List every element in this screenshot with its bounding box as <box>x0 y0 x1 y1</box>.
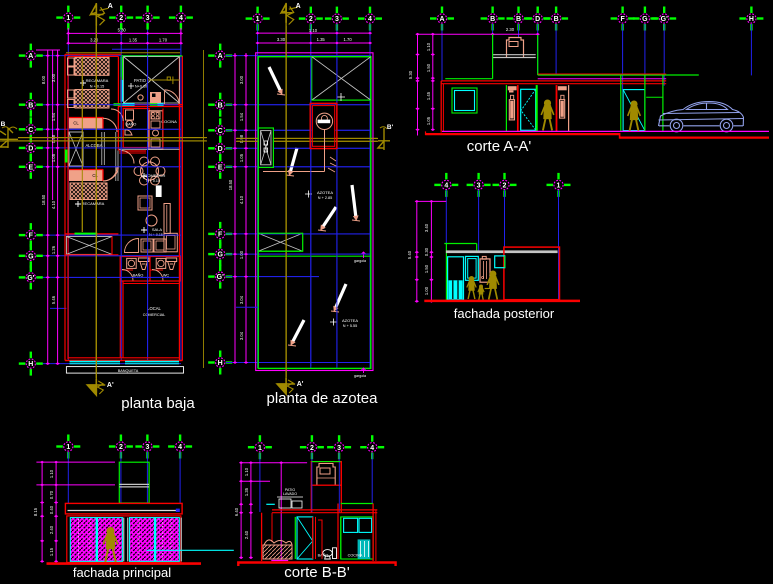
svg-text:E: E <box>218 164 223 171</box>
svg-text:BAÑO: BAÑO <box>318 553 329 558</box>
svg-text:1.05: 1.05 <box>426 116 431 125</box>
svg-text:3.30: 3.30 <box>277 37 286 42</box>
svg-text:5.46: 5.46 <box>51 295 56 304</box>
svg-text:3.40: 3.40 <box>424 223 429 232</box>
svg-text:LAVADO: LAVADO <box>283 492 297 496</box>
svg-text:A': A' <box>107 382 114 389</box>
svg-text:4: 4 <box>368 16 372 23</box>
svg-text:gargola: gargola <box>354 259 366 263</box>
svg-text:A: A <box>108 3 113 10</box>
svg-text:WC: WC <box>163 274 170 278</box>
svg-text:gargola: gargola <box>354 374 366 378</box>
svg-text:H: H <box>28 361 33 368</box>
svg-text:1.35: 1.35 <box>129 38 138 43</box>
svg-text:A: A <box>218 53 223 60</box>
svg-text:BAÑO: BAÑO <box>126 122 137 127</box>
svg-text:1.54: 1.54 <box>239 112 244 121</box>
svg-text:BAÑO: BAÑO <box>133 273 144 278</box>
svg-text:COCINA: COCINA <box>161 119 177 124</box>
svg-text:18.50: 18.50 <box>228 179 233 190</box>
svg-text:B: B <box>516 16 521 23</box>
svg-text:0.98: 0.98 <box>51 134 56 143</box>
svg-text:B: B <box>218 102 223 109</box>
svg-text:COCINA: COCINA <box>348 554 363 558</box>
svg-text:4.10: 4.10 <box>51 200 56 209</box>
svg-text:F: F <box>620 16 625 23</box>
svg-text:1.54: 1.54 <box>51 112 56 121</box>
svg-text:A: A <box>296 3 301 10</box>
svg-text:1: 1 <box>258 445 262 452</box>
svg-text:D: D <box>535 16 540 23</box>
svg-text:corte B-B': corte B-B' <box>284 564 350 581</box>
svg-text:4: 4 <box>444 183 448 190</box>
svg-text:B: B <box>490 16 495 23</box>
svg-text:A: A <box>439 16 444 23</box>
svg-text:LOCAL: LOCAL <box>147 306 161 311</box>
svg-text:D: D <box>218 146 223 153</box>
svg-text:2: 2 <box>309 16 313 23</box>
svg-text:3.00: 3.00 <box>239 75 244 84</box>
svg-text:1.35: 1.35 <box>244 487 249 496</box>
svg-text:4: 4 <box>178 444 182 451</box>
svg-text:G': G' <box>27 275 34 282</box>
svg-text:2: 2 <box>310 445 314 452</box>
svg-text:1.10: 1.10 <box>49 469 54 478</box>
svg-text:3.04: 3.04 <box>239 295 244 304</box>
svg-text:0.40: 0.40 <box>49 505 54 514</box>
svg-text:B: B <box>1 121 6 128</box>
svg-text:corte A-A': corte A-A' <box>467 138 532 155</box>
svg-text:N + 0.15: N + 0.15 <box>90 85 104 89</box>
svg-text:SALA: SALA <box>152 227 163 232</box>
svg-text:3: 3 <box>335 16 339 23</box>
svg-text:5.30: 5.30 <box>408 70 413 79</box>
svg-text:N + 2.85: N + 2.85 <box>318 196 332 200</box>
svg-text:4: 4 <box>179 15 183 22</box>
svg-text:G': G' <box>661 16 668 23</box>
svg-text:3: 3 <box>337 445 341 452</box>
svg-text:1.10: 1.10 <box>426 42 431 51</box>
svg-text:3: 3 <box>477 183 481 190</box>
svg-text:RECAMARA: RECAMARA <box>82 201 105 206</box>
svg-text:AZOTEA: AZOTEA <box>317 190 333 195</box>
svg-text:1.35: 1.35 <box>317 37 326 42</box>
svg-text:3: 3 <box>146 15 150 22</box>
svg-text:H: H <box>749 16 754 23</box>
svg-text:1.10: 1.10 <box>309 28 318 33</box>
svg-text:1.00: 1.00 <box>424 286 429 295</box>
svg-text:C: C <box>28 127 33 134</box>
svg-text:3.00: 3.00 <box>51 73 56 82</box>
svg-text:6.40: 6.40 <box>234 507 239 516</box>
svg-text:planta de azotea: planta de azotea <box>267 390 379 407</box>
svg-text:CL: CL <box>73 121 79 126</box>
svg-text:N + 5.55: N + 5.55 <box>343 324 357 328</box>
svg-text:4.10: 4.10 <box>239 195 244 204</box>
svg-text:AZOTEA: AZOTEA <box>342 318 358 323</box>
svg-text:G: G <box>28 253 34 260</box>
svg-text:N + 0.15: N + 0.15 <box>146 179 160 183</box>
svg-text:G: G <box>642 16 648 23</box>
svg-text:1.15: 1.15 <box>49 547 54 556</box>
svg-text:D: D <box>28 146 33 153</box>
svg-text:A': A' <box>297 381 304 388</box>
svg-text:2.40: 2.40 <box>244 530 249 539</box>
svg-text:2: 2 <box>119 444 123 451</box>
svg-text:8.00: 8.00 <box>41 75 46 84</box>
svg-text:BANQUETA: BANQUETA <box>118 369 139 373</box>
svg-text:2.30: 2.30 <box>506 27 515 32</box>
svg-text:1.70: 1.70 <box>344 37 353 42</box>
svg-text:2: 2 <box>503 183 507 190</box>
svg-text:fachada principal: fachada principal <box>73 565 171 580</box>
svg-text:1: 1 <box>557 183 561 190</box>
svg-text:CL: CL <box>92 173 98 178</box>
svg-text:1.05: 1.05 <box>51 153 56 162</box>
svg-text:fachada posterior: fachada posterior <box>454 306 555 321</box>
svg-text:C: C <box>218 128 223 135</box>
svg-text:8.15: 8.15 <box>33 507 38 516</box>
svg-text:F: F <box>218 232 223 239</box>
svg-text:1: 1 <box>66 444 70 451</box>
svg-text:1.70: 1.70 <box>159 38 168 43</box>
svg-text:B: B <box>28 102 33 109</box>
svg-text:1: 1 <box>256 16 260 23</box>
svg-text:3: 3 <box>145 444 149 451</box>
svg-text:E: E <box>28 164 33 171</box>
svg-text:0.70: 0.70 <box>49 490 54 499</box>
svg-text:H: H <box>218 360 223 367</box>
svg-text:1.50: 1.50 <box>426 63 431 72</box>
svg-text:RECAMARA: RECAMARA <box>86 78 109 83</box>
svg-text:3.20: 3.20 <box>90 38 99 43</box>
svg-text:3.04: 3.04 <box>239 331 244 340</box>
svg-text:A: A <box>28 53 33 60</box>
svg-text:PATIO: PATIO <box>285 488 295 492</box>
svg-text:N+0.10: N+0.10 <box>135 85 147 89</box>
svg-text:18.50: 18.50 <box>41 194 46 205</box>
svg-text:4: 4 <box>370 445 374 452</box>
svg-text:2.40: 2.40 <box>49 525 54 534</box>
svg-text:5.40: 5.40 <box>407 250 412 259</box>
svg-text:B': B' <box>387 124 394 131</box>
svg-text:5.30: 5.30 <box>118 28 127 33</box>
svg-text:1.45: 1.45 <box>426 91 431 100</box>
svg-text:COMERCIAL: COMERCIAL <box>143 313 166 317</box>
svg-text:1.26: 1.26 <box>51 245 56 254</box>
svg-text:F: F <box>29 233 34 240</box>
svg-text:1.05: 1.05 <box>239 153 244 162</box>
svg-text:G': G' <box>217 274 224 281</box>
svg-text:B: B <box>554 16 559 23</box>
svg-text:0.30: 0.30 <box>424 247 429 256</box>
svg-text:planta baja: planta baja <box>121 395 195 412</box>
svg-text:1.50: 1.50 <box>424 264 429 273</box>
svg-text:1.10: 1.10 <box>244 467 249 476</box>
svg-text:1.00: 1.00 <box>239 250 244 259</box>
svg-text:ALCOBA: ALCOBA <box>86 143 103 148</box>
svg-text:PATIO: PATIO <box>134 78 147 83</box>
svg-text:1: 1 <box>66 15 70 22</box>
svg-text:G: G <box>217 252 223 259</box>
svg-text:2: 2 <box>119 15 123 22</box>
